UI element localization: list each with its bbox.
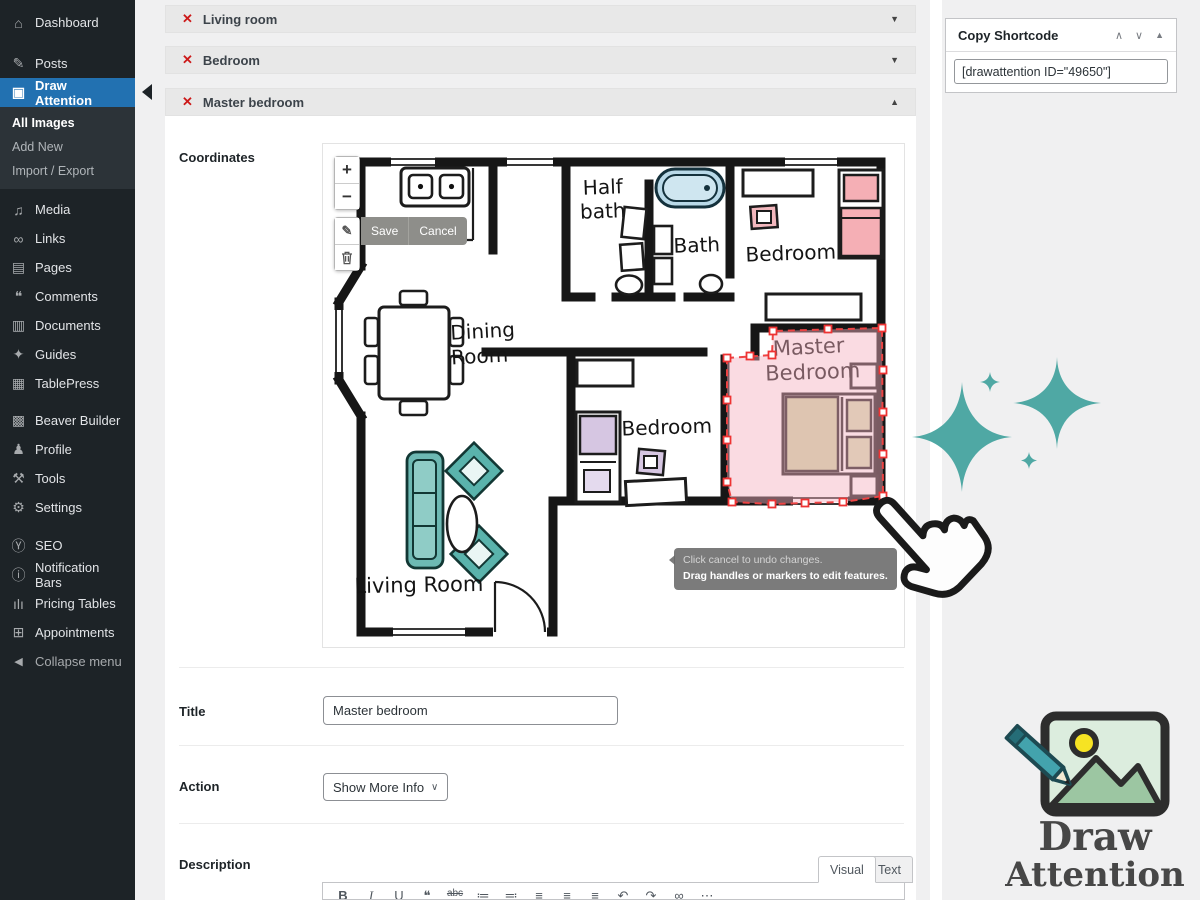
sidebar-item-label: Settings [35, 500, 82, 515]
delete-shape-button[interactable] [335, 244, 359, 270]
draw-attention-logo: Draw Attention [1000, 700, 1190, 896]
bulleted-list-icon[interactable]: ≔ [471, 888, 495, 900]
postbox-title: Copy Shortcode [958, 28, 1058, 43]
bath-label: Bath [673, 232, 720, 258]
master-bedroom-selection[interactable] [724, 325, 887, 508]
sidebar-item-label: TablePress [35, 376, 99, 391]
bar-chart-icon: ılı [10, 596, 27, 612]
sidebar-item-links[interactable]: ∞Links [0, 224, 135, 253]
editor-toolbar: B I U ❝ abc ≔ ≕ ≡ ≡ ≡ ↶ ↷ ∞ ⋯ [323, 883, 904, 900]
remove-hotspot-icon[interactable]: ✕ [182, 94, 193, 110]
remove-hotspot-icon[interactable]: ✕ [182, 11, 193, 27]
hotspot-detail-panel: Coordinates [165, 116, 916, 900]
sidebar-item-label: Appointments [35, 625, 115, 640]
bold-icon[interactable]: B [331, 888, 355, 900]
draw-attention-admin-page: ⌂Dashboard ✎Posts ▣Draw Attention All Im… [0, 0, 1200, 900]
chevron-up-icon[interactable]: ▲ [890, 97, 899, 107]
coordinates-label: Coordinates [179, 150, 255, 165]
pages-icon: ▤ [10, 259, 27, 276]
gear-icon: ⚙ [10, 499, 27, 516]
title-label: Title [179, 704, 206, 719]
sidebar-item-label: Pricing Tables [35, 596, 116, 611]
action-label: Action [179, 779, 219, 794]
map-zoom-controls: + − [334, 156, 360, 210]
toggle-panel-icon[interactable]: ▲ [1155, 30, 1164, 40]
accordion-living-room[interactable]: ✕ Living room ▼ [165, 5, 916, 33]
user-icon: ♟ [10, 441, 27, 458]
redo-icon[interactable]: ↷ [639, 888, 663, 900]
postbox-body [946, 52, 1176, 92]
logo-word-2: Attention [1004, 855, 1185, 895]
trash-icon [341, 251, 353, 265]
align-left-icon[interactable]: ≡ [527, 888, 551, 900]
zoom-in-button[interactable]: + [335, 157, 359, 183]
media-icon: ♫ [10, 202, 27, 218]
sidebar-item-notification-bars[interactable]: ⓘNotification Bars [0, 560, 135, 589]
sidebar-item-pricing-tables[interactable]: ılıPricing Tables [0, 589, 135, 618]
bedroom-mid-label: Bedroom [621, 413, 712, 440]
sidebar-item-seo[interactable]: ⓎSEO [0, 531, 135, 560]
divider [179, 823, 904, 824]
sidebar-separator [0, 522, 135, 531]
submenu-item-all-images[interactable]: All Images [0, 111, 135, 135]
posts-icon: ✎ [10, 55, 27, 72]
map-edit-controls: ✎ Save Cancel [334, 217, 360, 271]
yoast-seo-icon: Ⓨ [10, 536, 27, 556]
sidebar-item-comments[interactable]: ❝Comments [0, 282, 135, 311]
accordion-master-bedroom[interactable]: ✕ Master bedroom ▲ [165, 88, 916, 116]
sidebar-item-dashboard[interactable]: ⌂Dashboard [0, 8, 135, 37]
bathtub [656, 169, 724, 207]
half-bath-label-2: bath [580, 198, 626, 224]
accordion-bedroom[interactable]: ✕ Bedroom ▼ [165, 46, 916, 74]
numbered-list-icon[interactable]: ≕ [499, 888, 523, 900]
sidebar-item-label: Dashboard [35, 15, 99, 30]
dining-furniture [365, 291, 463, 415]
save-button[interactable]: Save [361, 217, 409, 245]
blockquote-icon[interactable]: ❝ [415, 888, 439, 900]
collapse-arrow-icon: ◀ [10, 655, 27, 668]
living-furniture [407, 443, 507, 583]
calendar-icon: ⊞ [10, 624, 27, 641]
move-up-icon[interactable]: ∧ [1115, 29, 1123, 42]
dashboard-icon: ⌂ [10, 15, 27, 31]
wp-admin-sidebar: ⌂Dashboard ✎Posts ▣Draw Attention All Im… [0, 0, 135, 900]
bedroom-top-label: Bedroom [745, 239, 836, 266]
action-select[interactable]: Show More Info ∨ [323, 773, 448, 801]
shortcode-input[interactable] [954, 59, 1168, 84]
strikethrough-icon[interactable]: abc [443, 888, 467, 900]
sidebar-item-label: Pages [35, 260, 72, 275]
more-icon[interactable]: ⋯ [695, 888, 719, 900]
logo-word-1: Draw [1038, 814, 1153, 860]
postbox-header[interactable]: Copy Shortcode ∧ ∨ ▲ [946, 19, 1176, 52]
align-center-icon[interactable]: ≡ [555, 888, 579, 900]
tab-visual[interactable]: Visual [818, 856, 876, 883]
sidebar-item-media[interactable]: ♫Media [0, 195, 135, 224]
sidebar-item-label: SEO [35, 538, 62, 553]
cancel-button[interactable]: Cancel [409, 217, 466, 245]
sidebar-item-settings[interactable]: ⚙Settings [0, 493, 135, 522]
move-down-icon[interactable]: ∨ [1135, 29, 1143, 42]
documents-icon: ▥ [10, 317, 27, 334]
sidebar-separator [0, 37, 135, 49]
coordinates-map[interactable]: Kitchen Half bath [322, 143, 905, 648]
title-input[interactable] [323, 696, 618, 725]
current-menu-arrow [134, 84, 152, 100]
sidebar-item-profile[interactable]: ♟Profile [0, 435, 135, 464]
links-icon: ∞ [10, 231, 27, 247]
accordion-label: Master bedroom [203, 95, 304, 110]
table-icon: ▦ [10, 375, 27, 392]
wrench-icon: ⚒ [10, 470, 27, 487]
link-icon[interactable]: ∞ [667, 888, 691, 900]
sidebar-item-appointments[interactable]: ⊞Appointments [0, 618, 135, 647]
chevron-down-icon[interactable]: ▼ [890, 14, 899, 24]
dining-label-2: Room [451, 343, 509, 370]
entry-door [493, 582, 547, 638]
comments-icon: ❝ [10, 288, 27, 305]
sidebar-item-label: Profile [35, 442, 72, 457]
sidebar-item-label: Documents [35, 318, 101, 333]
dining-label-1: Dining [450, 317, 516, 344]
zoom-out-button[interactable]: − [335, 183, 359, 209]
sidebar-item-tools[interactable]: ⚒Tools [0, 464, 135, 493]
accordion-label: Living room [203, 12, 277, 27]
remove-hotspot-icon[interactable]: ✕ [182, 52, 193, 68]
select-caret-icon: ∨ [431, 782, 438, 793]
sidebar-item-draw-attention[interactable]: ▣Draw Attention [0, 78, 135, 107]
save-cancel-actions: Save Cancel [361, 217, 467, 245]
sidebar-item-label: Draw Attention [35, 78, 125, 108]
sidebar-item-label: Beaver Builder [35, 413, 120, 428]
edit-shape-button[interactable]: ✎ [335, 218, 359, 244]
sidebar-item-label: Tools [35, 471, 65, 486]
copy-shortcode-box: Copy Shortcode ∧ ∨ ▲ [945, 18, 1177, 93]
align-right-icon[interactable]: ≡ [583, 888, 607, 900]
guides-icon: ✦ [10, 346, 27, 363]
sidebar-item-beaver-builder[interactable]: ▩Beaver Builder [0, 406, 135, 435]
description-editor[interactable]: B I U ❝ abc ≔ ≕ ≡ ≡ ≡ ↶ ↷ ∞ ⋯ [322, 882, 905, 900]
sidebar-separator [0, 398, 135, 406]
undo-icon[interactable]: ↶ [611, 888, 635, 900]
sidebar-item-label: Guides [35, 347, 76, 362]
underline-icon[interactable]: U [387, 888, 411, 900]
divider [179, 745, 904, 746]
sidebar-item-label: Collapse menu [35, 654, 122, 669]
builder-icon: ▩ [10, 412, 27, 429]
image-stack-icon: ▣ [10, 84, 27, 101]
sidebar-item-label: Notification Bars [35, 560, 125, 590]
chevron-down-icon[interactable]: ▼ [890, 55, 899, 65]
italic-icon[interactable]: I [359, 888, 383, 900]
submenu-item-import-export[interactable]: Import / Export [0, 159, 135, 183]
description-label: Description [179, 857, 251, 872]
sidebar-item-label: Media [35, 202, 70, 217]
sidebar-item-collapse-menu[interactable]: ◀Collapse menu [0, 647, 135, 676]
info-icon: ⓘ [10, 565, 27, 585]
accordion-label: Bedroom [203, 53, 260, 68]
sidebar-item-label: Posts [35, 56, 68, 71]
action-selected-value: Show More Info [333, 780, 424, 795]
draw-attention-submenu: All Images Add New Import / Export [0, 107, 135, 189]
sidebar-item-pages[interactable]: ▤Pages [0, 253, 135, 282]
sidebar-item-label: Links [35, 231, 65, 246]
sidebar-item-label: Comments [35, 289, 98, 304]
sidebar-item-documents[interactable]: ▥Documents [0, 311, 135, 340]
half-bath-label-1: Half [582, 174, 624, 199]
sidebar-item-tablepress[interactable]: ▦TablePress [0, 369, 135, 398]
living-room-label: Living Room [354, 572, 483, 598]
tooltip-arrow [669, 555, 675, 565]
sidebar-item-posts[interactable]: ✎Posts [0, 49, 135, 78]
divider [179, 667, 904, 668]
submenu-item-add-new[interactable]: Add New [0, 135, 135, 159]
sidebar-item-guides[interactable]: ✦Guides [0, 340, 135, 369]
